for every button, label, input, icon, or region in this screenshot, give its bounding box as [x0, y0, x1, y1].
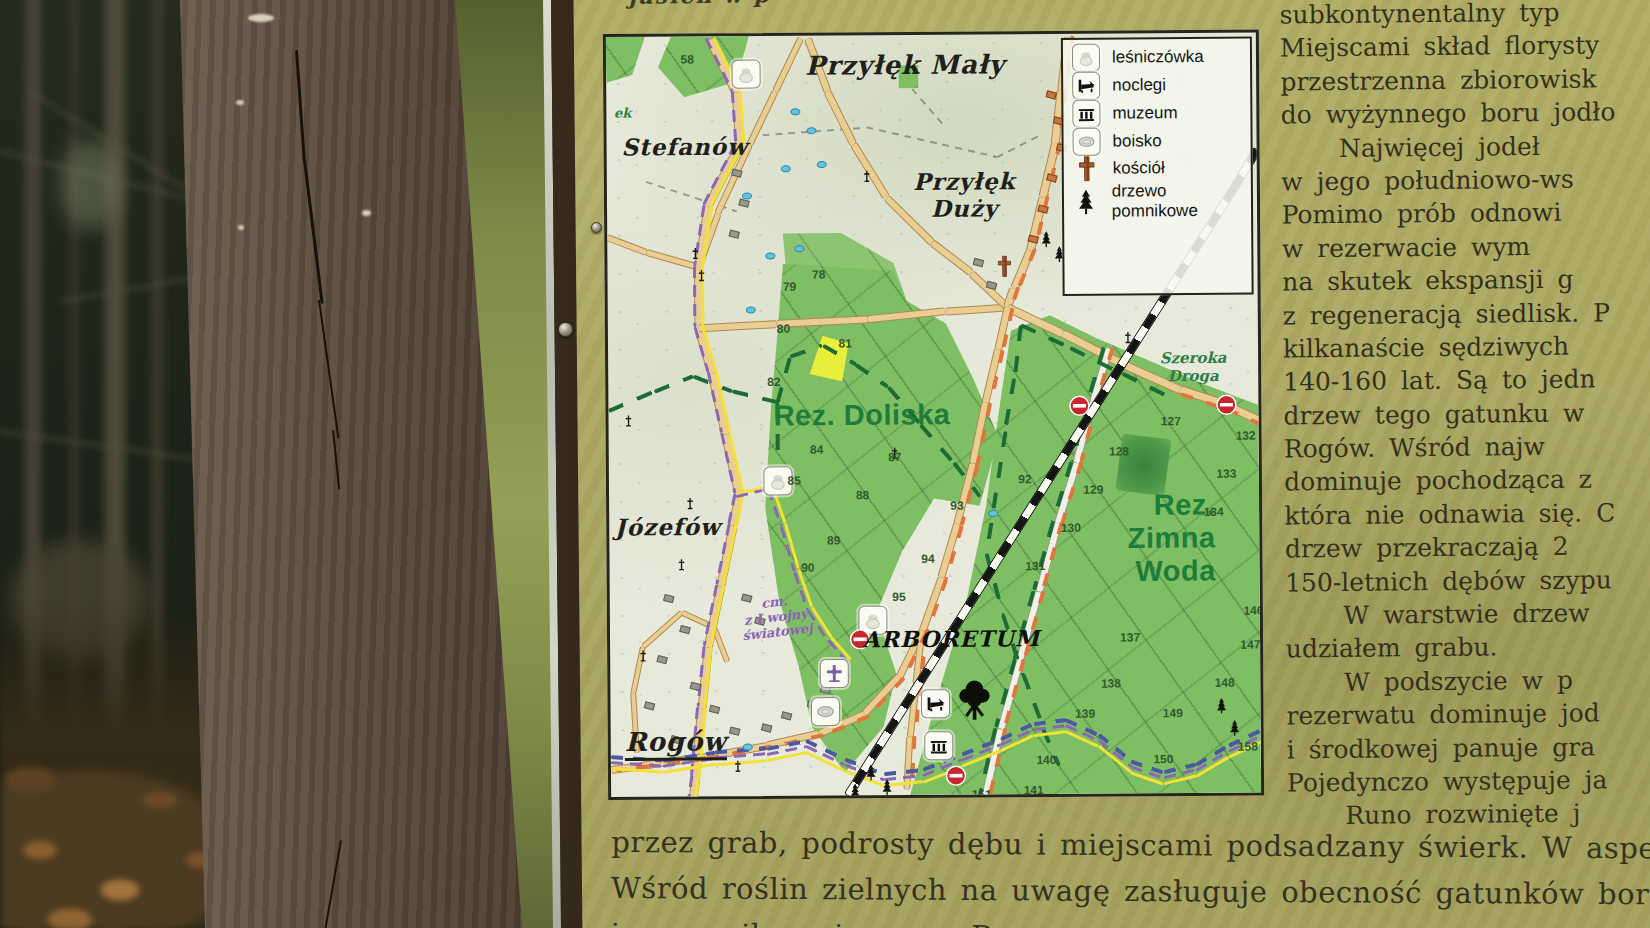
description-line: przestrzenna zbiorowisk	[1280, 63, 1650, 100]
description-line: która nie odnawia się. C	[1284, 497, 1650, 534]
compartment-number: 87	[888, 450, 901, 464]
map-label-przylek-maly: Przyłęk Mały	[805, 50, 1005, 81]
pond	[746, 306, 756, 313]
road	[606, 235, 647, 255]
legend-label: leśniczówka	[1112, 47, 1204, 68]
legend-row: muzeum	[1071, 98, 1250, 127]
village-road	[641, 611, 682, 648]
description-line: rezerwatu dominuje jod	[1286, 698, 1650, 735]
museum-icon	[1071, 99, 1101, 127]
road-przylek	[825, 90, 857, 146]
compartment-number: 79	[783, 280, 796, 294]
compartment-number: 58	[681, 52, 694, 66]
compartment-number: 141	[1024, 783, 1044, 797]
description-line: drzew tego gatunku w	[1283, 397, 1650, 434]
description-line: Pojedynczo występuje ja	[1287, 765, 1650, 802]
purple-trail	[693, 266, 696, 327]
building	[709, 704, 720, 713]
compartment-number: 130	[1061, 521, 1081, 535]
wood-crack	[324, 840, 342, 928]
legend-row: noclegi	[1071, 70, 1250, 99]
compartment-number: 85	[787, 473, 800, 487]
reserve-boundary	[653, 375, 693, 394]
compartment-number: 147	[1240, 637, 1260, 651]
compartment-number: 84	[810, 443, 823, 457]
parcel-line	[996, 133, 1042, 157]
compartment-number: 132	[1236, 428, 1256, 442]
description-line: w rezerwacie wym	[1282, 230, 1650, 267]
legend-rows: leśniczówkanoclegimuzeumboiskokościółdrz…	[1071, 42, 1251, 221]
description-line: W warstwie drzew	[1285, 598, 1650, 635]
description-line: Wśród roślin zielnych na uwagę zasługuje…	[611, 871, 1650, 924]
wood-crack	[303, 160, 324, 304]
information-board: jasień w p Przyłęk MałyStefanówPrzyłęk D…	[573, 0, 1650, 928]
compartment-number: 127	[1161, 414, 1181, 428]
compartment-number: 81	[839, 336, 852, 350]
building	[644, 701, 655, 710]
compartment-number: 129	[1083, 483, 1103, 497]
compartment-number: 137	[1120, 631, 1140, 645]
big-tree-icon	[955, 678, 993, 721]
monument-tree-icon	[848, 783, 861, 800]
map-label-arboretum: ARBORETUM	[862, 625, 1040, 652]
building	[780, 711, 791, 720]
road	[747, 91, 777, 147]
map-label-stream-fragment: ek	[614, 105, 631, 120]
lodging-icon	[921, 689, 950, 718]
pond	[806, 127, 816, 134]
compartment-number: 148	[1215, 676, 1235, 690]
pond	[765, 253, 775, 260]
pond	[794, 245, 804, 252]
reserve-boundary	[608, 390, 655, 413]
wayside-cross-icon	[623, 414, 632, 427]
description-line: z regeneracją siedlisk. P	[1282, 297, 1650, 334]
description-line: Pomimo prób odnowi	[1281, 197, 1650, 234]
compartment-number: 140	[1036, 753, 1056, 767]
building	[689, 682, 700, 691]
lodging-icon	[1071, 71, 1101, 99]
map-label-szeroka-droga: Szeroka Droga	[1160, 349, 1227, 385]
pond	[780, 165, 790, 172]
wayside-cross-icon	[691, 247, 700, 260]
compartment-number: 150	[1153, 752, 1173, 766]
legend-label: drzewo pomnikowe	[1112, 180, 1252, 221]
compartment-number: 139	[1075, 707, 1095, 721]
paint-speck	[238, 225, 244, 230]
compartment-number: 128	[1109, 444, 1129, 458]
description-line: Rogów. Wśród najw	[1284, 431, 1650, 468]
description-line: 150-letnich dębów szypu	[1285, 564, 1650, 601]
light-patch	[60, 140, 120, 230]
legend-row: boisko	[1071, 126, 1250, 155]
legend-label: boisko	[1113, 131, 1162, 151]
description-line: udziałem grabu.	[1286, 631, 1650, 668]
description-line: subkontynentalny typ	[1280, 0, 1650, 34]
description-line: dominuje pochodząca z	[1284, 464, 1650, 501]
pond	[988, 510, 998, 517]
description-line: do wyżynnego boru jodło	[1280, 97, 1650, 134]
monument-tree-icon	[881, 779, 894, 796]
map-label-rogow: Rogów	[625, 726, 727, 761]
parcel-line	[911, 88, 945, 127]
wayside-cross-icon	[1123, 331, 1132, 344]
cropped-top-text-line: jasień w p	[628, 0, 771, 9]
pond	[742, 192, 752, 199]
description-line: i środkowej panuje gra	[1287, 731, 1650, 768]
pond	[790, 108, 800, 115]
compartment-number: 138	[1101, 676, 1121, 690]
paint-speck	[362, 210, 371, 216]
compartment-number: 131	[1025, 559, 1045, 573]
legend-label: noclegi	[1112, 75, 1166, 95]
compartment-number: 78	[812, 268, 825, 282]
road	[773, 37, 803, 93]
compartment-number: 133	[1216, 467, 1236, 481]
photo-of-forest-information-board: jasień w p Przyłęk MałyStefanówPrzyłęk D…	[0, 0, 1650, 928]
monument-tree-icon	[1228, 720, 1241, 737]
description-text-bottom: przez grab, podrosty dębu i miejscami po…	[611, 825, 1650, 928]
paint-speck	[248, 14, 274, 22]
screw	[591, 222, 602, 233]
museum-icon	[924, 731, 953, 760]
description-text-column: subkontynentalny typMiejscami skład flor…	[1280, 0, 1650, 835]
sports-field-icon	[1071, 127, 1101, 155]
wood-crack	[295, 50, 306, 162]
forester-lodge-icon	[1071, 43, 1101, 71]
parcel-line	[866, 126, 997, 157]
compartment-number: 92	[1018, 472, 1031, 486]
compartment-number: 158	[1238, 740, 1258, 754]
paint-speck	[236, 100, 244, 105]
yellow-trail	[611, 767, 663, 773]
compartment-number: 94	[921, 552, 934, 566]
sports-field-icon	[810, 697, 839, 726]
building	[738, 199, 749, 208]
monument-tree-icon	[1215, 697, 1228, 714]
wayside-cross-icon	[862, 170, 871, 183]
church-icon	[995, 255, 1012, 277]
legend-label: muzeum	[1112, 103, 1177, 123]
building	[1046, 90, 1057, 99]
road	[699, 321, 777, 331]
description-line: 140-160 lat. Są to jedn	[1283, 364, 1650, 401]
description-line: Najwięcej jodeł	[1281, 130, 1650, 167]
wayside-cross-icon	[676, 558, 685, 571]
legend-label: kościół	[1113, 158, 1165, 178]
monument-tree-icon	[864, 764, 877, 781]
compartment-number: 93	[950, 499, 963, 513]
pond	[742, 743, 752, 750]
compartment-number: 90	[801, 561, 814, 575]
screw	[558, 322, 573, 337]
no-entry-icon	[1215, 395, 1236, 416]
wayside-cross-icon	[733, 759, 742, 772]
road	[946, 304, 1008, 314]
description-line: na skutek ekspansji g	[1282, 264, 1650, 301]
building	[728, 727, 739, 736]
dense-forest-patch	[1116, 433, 1172, 496]
description-line: przez grab, podrosty dębu i miejscami po…	[611, 825, 1650, 878]
map-legend: leśniczówkanoclegimuzeumboiskokościółdrz…	[1061, 36, 1254, 296]
compartment-number: 151	[972, 787, 992, 800]
wood-crack	[318, 300, 339, 439]
description-line: Miejscami skład florysty	[1280, 30, 1650, 67]
no-entry-icon	[1069, 396, 1090, 417]
legend-row: kościół	[1072, 154, 1251, 181]
no-entry-icon	[945, 765, 966, 786]
road-przylek	[930, 241, 973, 276]
building	[761, 723, 772, 732]
map-label-jozefow: Józefów	[615, 513, 721, 541]
map-label-stefanow: Stefanów	[621, 133, 748, 161]
building	[728, 229, 739, 238]
reserve-boundary	[731, 390, 778, 405]
description-line: drzew przekraczają 2	[1285, 531, 1650, 568]
description-line: W podszycie w p	[1286, 664, 1650, 701]
chapel-cross-icon	[820, 659, 849, 688]
wood-crack	[332, 430, 340, 490]
wayside-cross-icon	[638, 650, 647, 663]
compartment-number: 80	[777, 321, 790, 335]
legend-row: drzewo pomnikowe	[1072, 180, 1251, 221]
wayside-cross-icon	[697, 269, 706, 282]
description-line: w jego południowo-ws	[1281, 164, 1650, 201]
compartment-number: 149	[1163, 706, 1183, 720]
building	[656, 655, 667, 664]
forester-lodge-icon	[731, 60, 760, 89]
compartment-number: 134	[1204, 505, 1224, 519]
map-label-przylek-duzy: Przyłęk Duży	[913, 167, 1016, 222]
church-icon	[1072, 155, 1102, 181]
description-line: kilkanaście sędziwych	[1283, 331, 1650, 368]
building	[679, 625, 690, 634]
compartment-number: 89	[827, 534, 840, 548]
trail-map: Przyłęk MałyStefanówPrzyłęk DużyJózefówR…	[603, 30, 1264, 801]
legend-row: leśniczówka	[1071, 42, 1250, 71]
monument-tree-icon	[1072, 188, 1101, 214]
building	[663, 594, 674, 603]
monument-tree-icon	[1039, 231, 1052, 248]
compartment-number: 146	[1243, 603, 1263, 617]
compartment-number: 82	[767, 375, 780, 389]
map-label-rez-zimna-woda: Rez. Zimna Woda	[1127, 489, 1216, 589]
pond	[816, 161, 826, 168]
map-label-cmentarz-1-wojny: cm. z I wojny światowej	[738, 591, 813, 644]
building	[972, 258, 983, 267]
map-label-rez-doliska: Rez. Doliska	[773, 398, 950, 432]
compartment-number: 95	[892, 590, 905, 604]
wayside-cross-icon	[686, 498, 695, 511]
compartment-number: 88	[856, 488, 869, 502]
